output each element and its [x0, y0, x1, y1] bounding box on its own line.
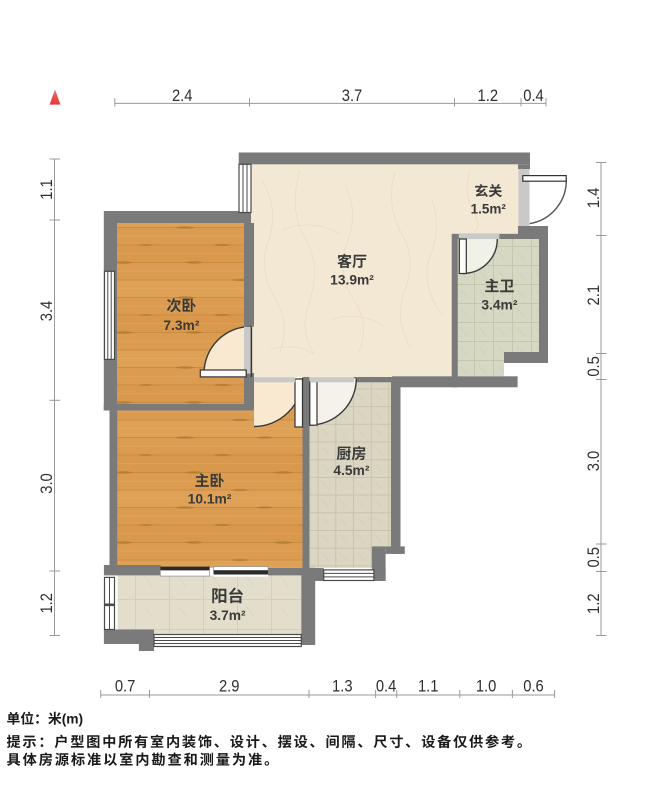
svg-text:3.0: 3.0: [39, 473, 57, 494]
svg-text:0.4: 0.4: [523, 88, 544, 106]
svg-text:3.7: 3.7: [342, 88, 363, 106]
svg-text:10.1m²: 10.1m²: [188, 491, 232, 506]
svg-text:1.1: 1.1: [418, 678, 439, 696]
svg-text:2.9: 2.9: [219, 678, 240, 696]
svg-text:3.7m²: 3.7m²: [210, 608, 246, 623]
svg-text:1.4: 1.4: [585, 187, 603, 208]
svg-text:3.4m²: 3.4m²: [481, 297, 517, 312]
svg-text:2.4: 2.4: [172, 88, 193, 106]
svg-text:2.1: 2.1: [585, 285, 603, 306]
svg-text:1.2: 1.2: [478, 88, 499, 106]
svg-text:3.0: 3.0: [585, 450, 603, 471]
svg-text:0.4: 0.4: [376, 678, 397, 696]
svg-text:4.5m²: 4.5m²: [333, 463, 369, 478]
svg-text:1.2: 1.2: [585, 593, 603, 614]
svg-text:0.7: 0.7: [115, 678, 136, 696]
svg-text:13.9m²: 13.9m²: [330, 272, 374, 287]
svg-text:0.6: 0.6: [523, 678, 544, 696]
svg-text:7.3m²: 7.3m²: [163, 318, 199, 333]
svg-text:1.0: 1.0: [476, 678, 497, 696]
svg-text:0.5: 0.5: [585, 547, 603, 568]
svg-text:1.5m²: 1.5m²: [471, 201, 507, 216]
svg-text:3.4: 3.4: [39, 300, 57, 321]
svg-text:1.2: 1.2: [39, 593, 57, 614]
svg-text:(m): (m): [62, 712, 83, 727]
svg-text:0.5: 0.5: [585, 356, 603, 377]
svg-text:1.3: 1.3: [332, 678, 353, 696]
svg-text:1.1: 1.1: [39, 179, 57, 200]
